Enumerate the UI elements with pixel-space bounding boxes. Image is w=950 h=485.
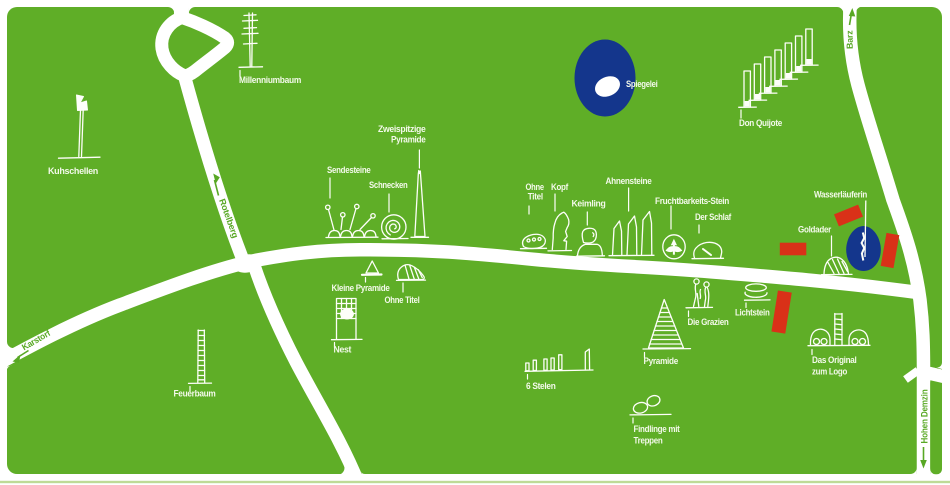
svg-text:Die Grazien: Die Grazien bbox=[688, 317, 729, 328]
svg-text:Spiegelei: Spiegelei bbox=[626, 79, 658, 90]
svg-text:Sendesteine: Sendesteine bbox=[327, 165, 371, 176]
svg-text:zum Logo: zum Logo bbox=[812, 367, 847, 378]
svg-text:Kleine Pyramide: Kleine Pyramide bbox=[332, 283, 390, 294]
svg-text:Wasserläuferin: Wasserläuferin bbox=[814, 190, 867, 201]
svg-text:Kuhschellen: Kuhschellen bbox=[48, 166, 98, 177]
svg-text:Millenniumbaum: Millenniumbaum bbox=[239, 75, 301, 86]
svg-text:Findlinge mit: Findlinge mit bbox=[634, 424, 681, 435]
svg-text:Goldader: Goldader bbox=[798, 225, 832, 236]
svg-text:Pyramide: Pyramide bbox=[391, 134, 426, 145]
svg-text:Hohen Demzin: Hohen Demzin bbox=[920, 390, 930, 444]
svg-text:Zweispitzige: Zweispitzige bbox=[378, 124, 426, 135]
svg-text:Nest: Nest bbox=[334, 345, 353, 356]
svg-text:Don Quijote: Don Quijote bbox=[739, 118, 782, 129]
svg-text:Ahnensteine: Ahnensteine bbox=[606, 176, 652, 187]
svg-text:Schnecken: Schnecken bbox=[369, 180, 408, 191]
svg-text:Fruchtbarkeits-Stein: Fruchtbarkeits-Stein bbox=[655, 196, 729, 207]
svg-text:Keimling: Keimling bbox=[572, 199, 606, 210]
svg-text:Feuerbaum: Feuerbaum bbox=[174, 389, 216, 400]
svg-text:Das Original: Das Original bbox=[812, 355, 857, 366]
svg-text:Treppen: Treppen bbox=[634, 436, 663, 447]
svg-text:Titel: Titel bbox=[528, 192, 543, 203]
svg-text:Der Schlaf: Der Schlaf bbox=[695, 212, 732, 223]
svg-text:Ohne Titel: Ohne Titel bbox=[385, 295, 420, 306]
svg-text:Kopf: Kopf bbox=[551, 182, 569, 193]
svg-text:Lichtstein: Lichtstein bbox=[735, 308, 770, 319]
svg-text:6 Stelen: 6 Stelen bbox=[526, 381, 556, 392]
svg-text:Pyramide: Pyramide bbox=[644, 356, 679, 367]
svg-text:Barz: Barz bbox=[844, 30, 854, 49]
